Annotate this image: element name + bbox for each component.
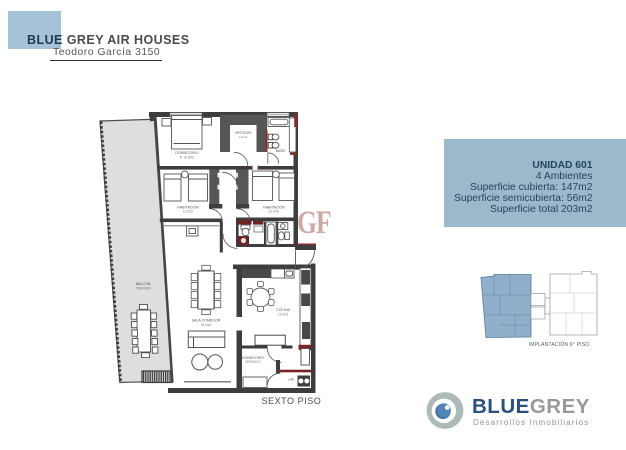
svg-text:35.0m2: 35.0m2 (201, 323, 212, 327)
svg-text:LAV.: LAV. (288, 378, 295, 382)
svg-text:BALCON: BALCON (136, 282, 151, 286)
svg-text:SERVICIO: SERVICIO (245, 360, 261, 364)
svg-text:P. 16.5m2: P. 16.5m2 (180, 155, 194, 159)
svg-text:BAÑO: BAÑO (276, 148, 286, 153)
svg-text:12.0m2: 12.0m2 (269, 210, 280, 214)
svg-text:13.0m2: 13.0m2 (278, 313, 289, 317)
svg-text:12.5m2: 12.5m2 (183, 210, 194, 214)
svg-text:SALA COMEDOR: SALA COMEDOR (192, 319, 221, 323)
svg-text:IMPLANTACIÓN 6° PISO: IMPLANTACIÓN 6° PISO (529, 341, 590, 348)
svg-text:6.0m2: 6.0m2 (239, 135, 248, 139)
svg-text:COCINA: COCINA (276, 308, 291, 312)
svg-text:TERRAZA: TERRAZA (136, 287, 152, 291)
